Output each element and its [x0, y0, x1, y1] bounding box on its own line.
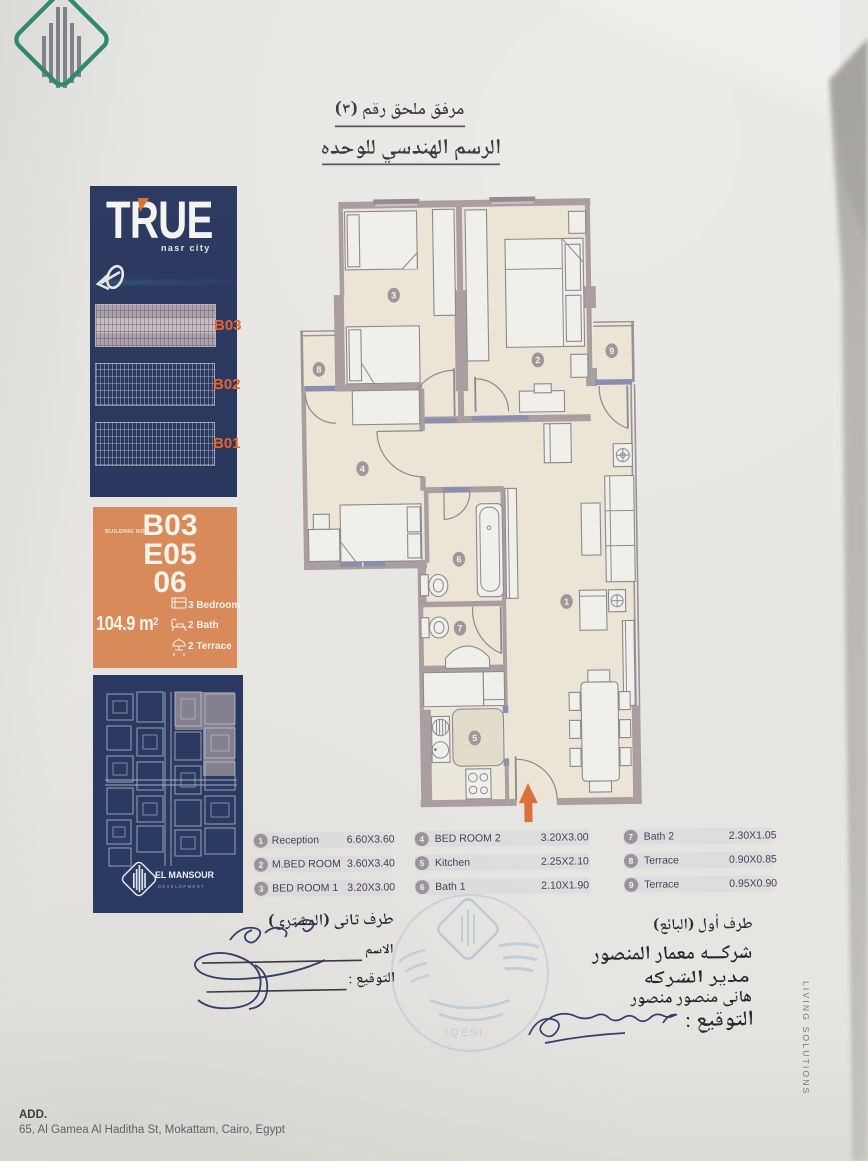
- svg-text:IQESI: IQESI: [445, 1027, 484, 1039]
